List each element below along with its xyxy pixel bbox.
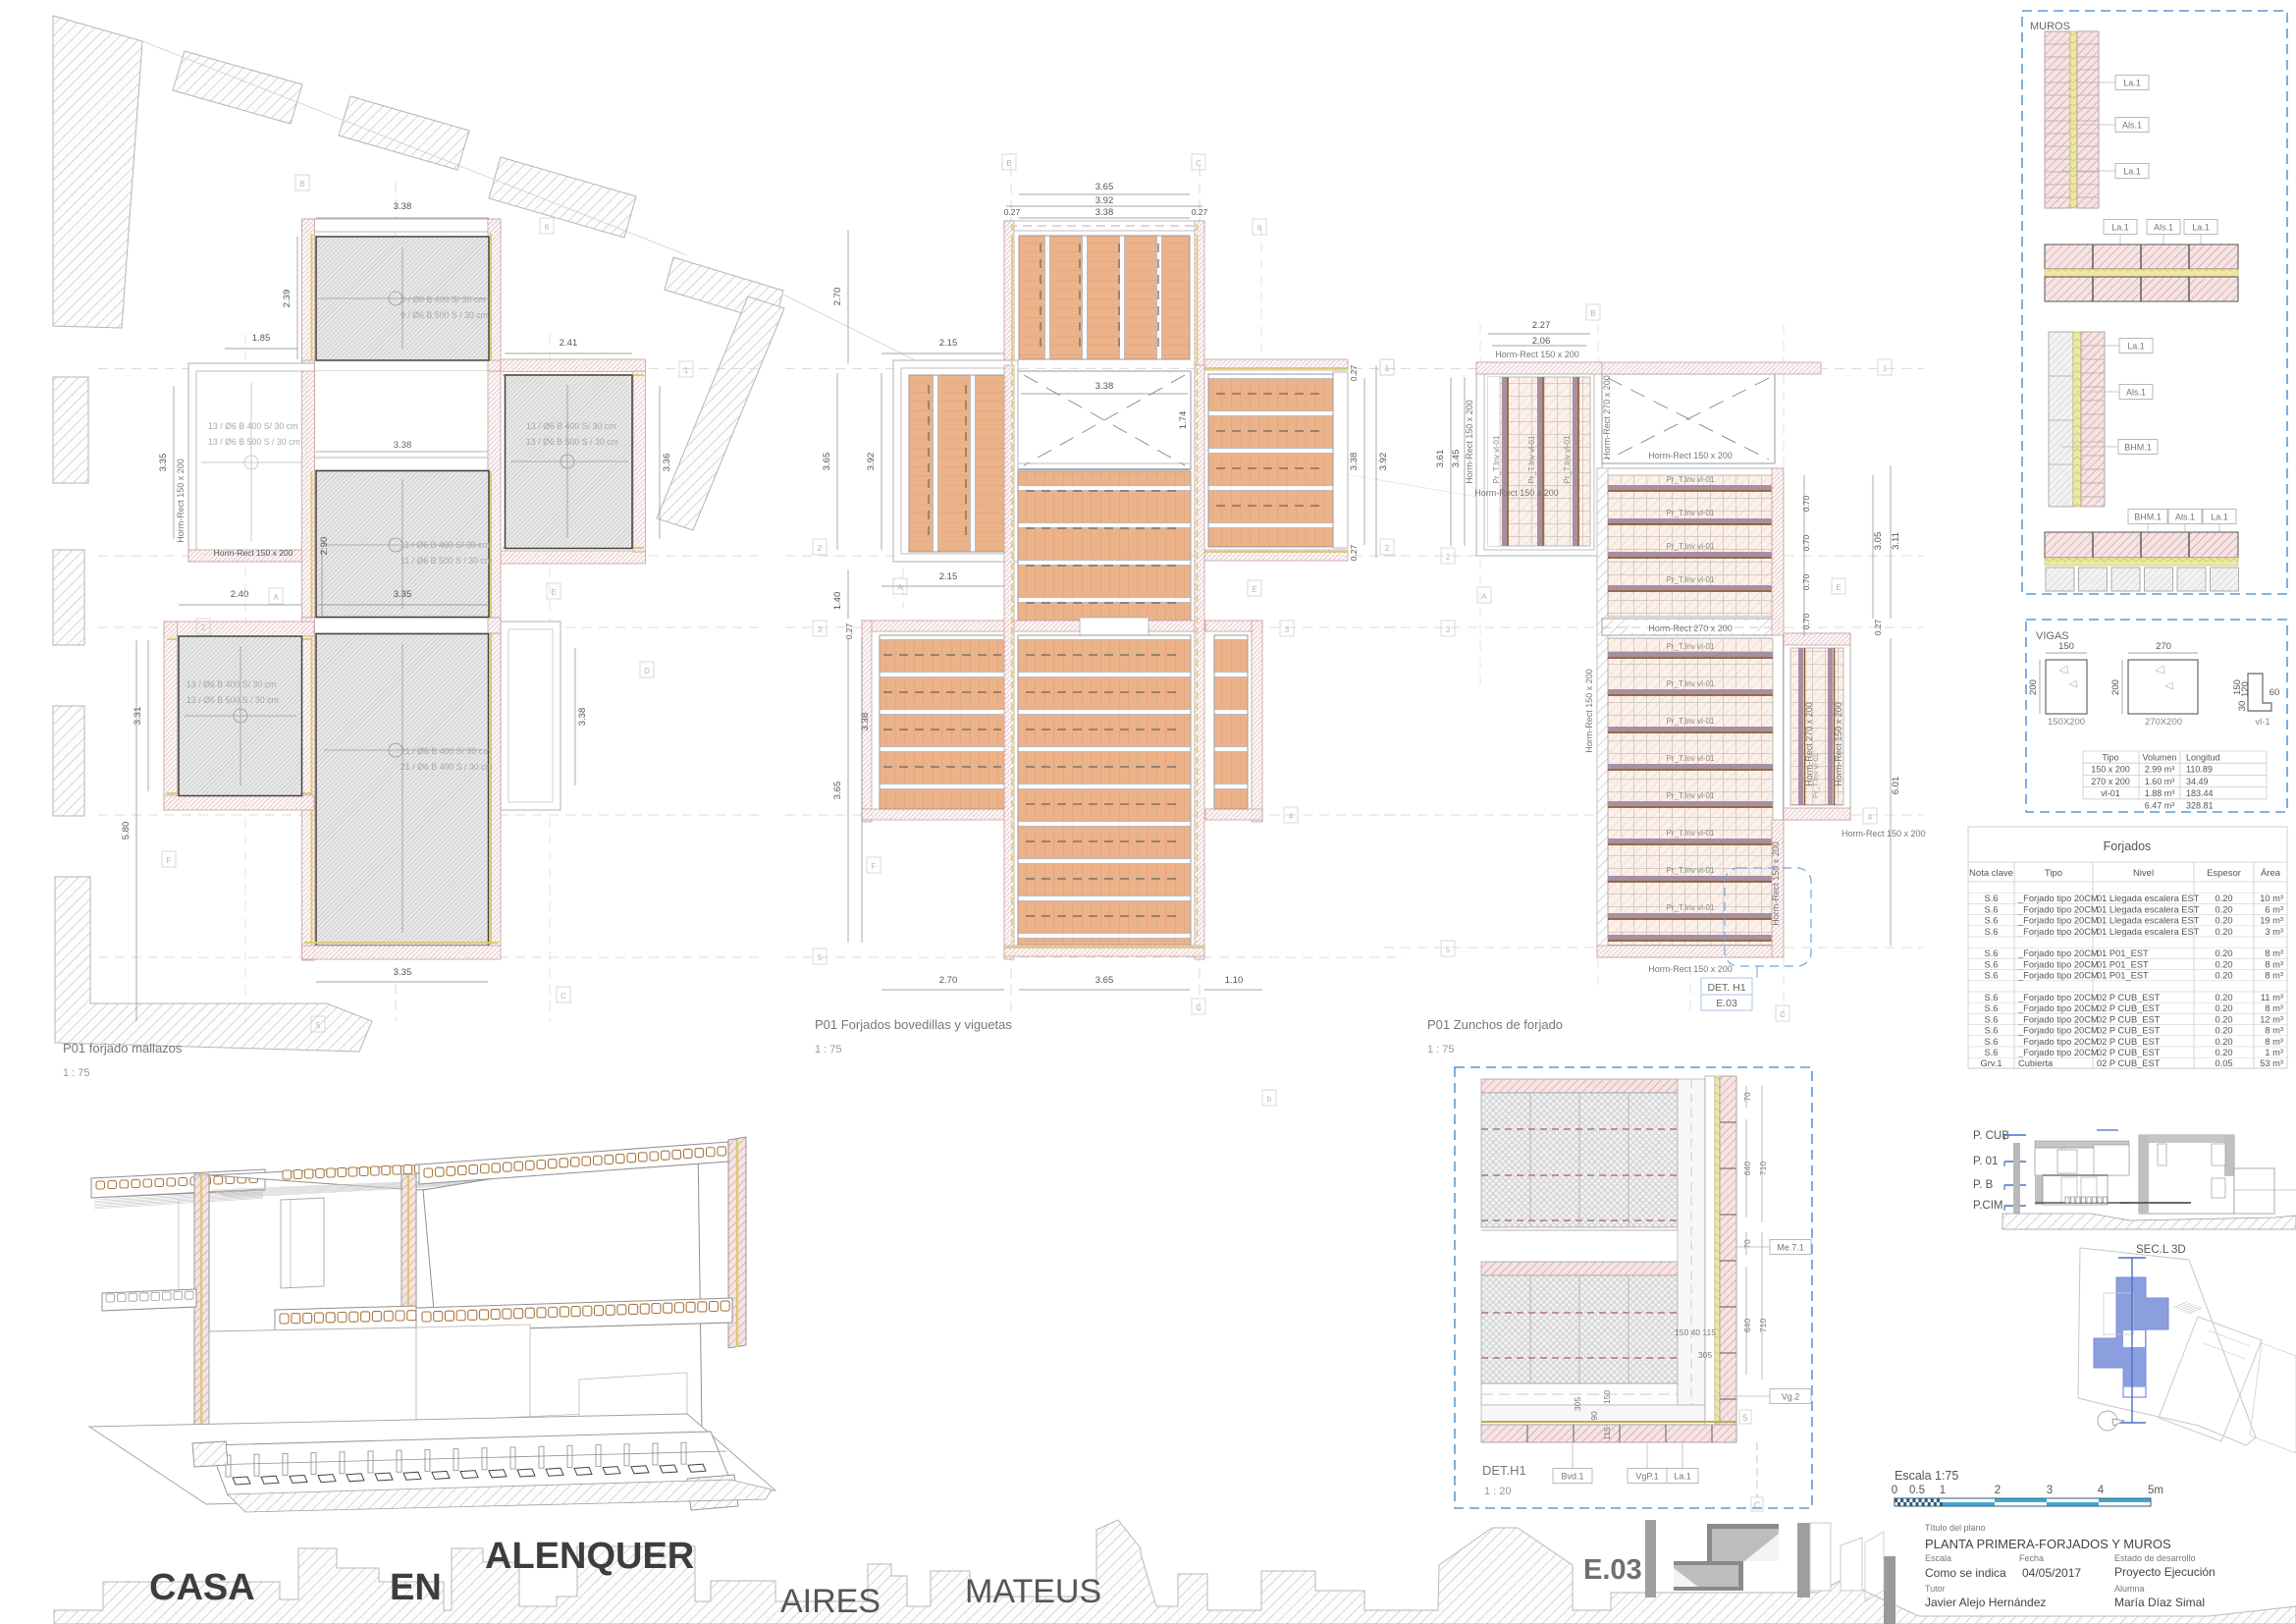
svg-text:02 P CUB_EST: 02 P CUB_EST (2097, 1037, 2161, 1047)
svg-text:3.35: 3.35 (394, 589, 412, 600)
svg-text:2.15: 2.15 (939, 338, 958, 349)
svg-text:Escala 1:75: Escala 1:75 (1895, 1469, 1958, 1483)
svg-text:01 P01_EST: 01 P01_EST (2097, 948, 2149, 958)
svg-text:3.61: 3.61 (1435, 450, 1446, 468)
svg-text:3.38: 3.38 (1095, 381, 1114, 392)
svg-text:2: 2 (1385, 544, 1390, 553)
svg-text:2.99 m³: 2.99 m³ (2145, 765, 2175, 775)
svg-text:Pr_T.Inv vl-01: Pr_T.Inv vl-01 (1667, 717, 1715, 726)
svg-text:Tutor: Tutor (1925, 1584, 1946, 1594)
svg-text:11 / Ø6 B 500 S / 30 cm: 11 / Ø6 B 500 S / 30 cm (400, 556, 492, 566)
svg-text:0.27: 0.27 (1349, 544, 1359, 561)
svg-text:La.1: La.1 (2192, 223, 2210, 233)
svg-text:2.40: 2.40 (231, 589, 249, 600)
svg-text:Horm-Rect 270 x 200: Horm-Rect 270 x 200 (1602, 375, 1612, 460)
svg-text:2: 2 (1446, 553, 1451, 562)
svg-text:E.03: E.03 (1716, 998, 1737, 1009)
svg-text:_Forjado tipo 20CM: _Forjado tipo 20CM (2017, 1003, 2099, 1013)
svg-text:1: 1 (1883, 364, 1888, 373)
svg-text:Pr_T.Inv vl-01: Pr_T.Inv vl-01 (1667, 903, 1715, 912)
svg-text:0.70: 0.70 (1801, 573, 1811, 590)
svg-text:Horm-Rect 270 x 200: Horm-Rect 270 x 200 (1648, 623, 1733, 633)
svg-text:DET.H1: DET.H1 (1482, 1463, 1526, 1478)
svg-text:C: C (1754, 1500, 1761, 1510)
svg-text:1 m³: 1 m³ (2265, 1048, 2283, 1057)
svg-text:P. 01: P. 01 (1973, 1156, 1998, 1167)
svg-text:_Forjado tipo 20CM: _Forjado tipo 20CM (2017, 959, 2099, 969)
svg-text:8 m³: 8 m³ (2265, 1003, 2283, 1013)
svg-text:Pr_T.Inv vl-01: Pr_T.Inv vl-01 (1667, 866, 1715, 875)
svg-text:3: 3 (2047, 1485, 2053, 1496)
svg-text:3.65: 3.65 (832, 782, 843, 800)
svg-text:0.27: 0.27 (844, 623, 854, 639)
svg-text:01 P01_EST: 01 P01_EST (2097, 971, 2149, 981)
svg-text:3.38: 3.38 (1349, 453, 1360, 471)
svg-text:Pr_T.Inv vl-01: Pr_T.Inv vl-01 (1667, 829, 1715, 838)
svg-text:0.70: 0.70 (1801, 613, 1811, 629)
svg-text:A: A (273, 593, 279, 602)
svg-text:9 / Ø6 B 400 S/ 30 cm: 9 / Ø6 B 400 S/ 30 cm (400, 295, 486, 304)
svg-text:90: 90 (1589, 1411, 1599, 1421)
svg-text:Pr_T.Inv vl-01: Pr_T.Inv vl-01 (1667, 679, 1715, 688)
svg-text:S.6: S.6 (1985, 971, 1999, 981)
svg-text:SEC.L 3D: SEC.L 3D (2136, 1244, 2186, 1256)
svg-text:0.5: 0.5 (1909, 1485, 1925, 1496)
svg-text:5m: 5m (2148, 1485, 2163, 1496)
svg-text:8 m³: 8 m³ (2265, 1037, 2283, 1047)
svg-text:9 / Ø6 B 500 S / 30 cm: 9 / Ø6 B 500 S / 30 cm (400, 310, 488, 320)
svg-text:0.20: 0.20 (2215, 1014, 2232, 1024)
svg-text:11 / Ø6 B 400 S/ 30 cm: 11 / Ø6 B 400 S/ 30 cm (400, 540, 490, 550)
svg-text:2.70: 2.70 (939, 975, 958, 986)
svg-text:270: 270 (2156, 641, 2171, 652)
svg-text:2: 2 (1995, 1485, 2001, 1496)
svg-text:Nota clave: Nota clave (1969, 868, 2013, 879)
svg-text:_Forjado tipo 20CM: _Forjado tipo 20CM (2017, 1037, 2099, 1047)
svg-text:2: 2 (818, 544, 823, 553)
svg-text:La.1: La.1 (2127, 342, 2145, 352)
svg-text:Área: Área (2261, 868, 2281, 879)
svg-text:Volumen: Volumen (2142, 753, 2176, 763)
svg-text:Horm-Rect 150 x 200: Horm-Rect 150 x 200 (1834, 702, 1843, 786)
svg-text:_Forjado tipo 20CM: _Forjado tipo 20CM (2017, 1048, 2099, 1057)
svg-text:C: C (561, 992, 566, 1001)
svg-text:vl-1: vl-1 (2255, 717, 2269, 728)
svg-text:01 Llegada escalera EST: 01 Llegada escalera EST (2097, 916, 2200, 926)
svg-text:Escala: Escala (1925, 1553, 1951, 1563)
svg-text:La.1: La.1 (1674, 1472, 1691, 1482)
svg-text:710: 710 (1758, 1319, 1768, 1332)
svg-text:710: 710 (1758, 1162, 1768, 1175)
svg-text:110.89: 110.89 (2186, 765, 2213, 775)
svg-text:BHM.1: BHM.1 (2124, 443, 2152, 453)
svg-text:150X200: 150X200 (2048, 717, 2085, 728)
svg-text:11 m³: 11 m³ (2261, 993, 2283, 1002)
svg-text:6.01: 6.01 (1891, 777, 1901, 795)
svg-text:150 x 200: 150 x 200 (2091, 765, 2130, 775)
svg-text:21 / Ø6 B 400 S/ 30 cm: 21 / Ø6 B 400 S/ 30 cm (400, 746, 490, 756)
svg-text:3.36: 3.36 (662, 454, 672, 472)
svg-text:S.6: S.6 (1985, 916, 1999, 926)
svg-text:Pr_T.Inv vl-01: Pr_T.Inv vl-01 (1492, 435, 1501, 483)
svg-text:3.38: 3.38 (577, 708, 588, 727)
svg-text:Me.7.1: Me.7.1 (1777, 1243, 1804, 1253)
svg-text:02 P CUB_EST: 02 P CUB_EST (2097, 993, 2161, 1002)
svg-text:La.1: La.1 (2211, 513, 2228, 522)
svg-text:1.40: 1.40 (832, 592, 843, 611)
svg-text:2.15: 2.15 (939, 571, 958, 582)
svg-text:Als.1: Als.1 (2126, 388, 2146, 398)
svg-text:Pr_T.Inv vl-01: Pr_T.Inv vl-01 (1667, 509, 1715, 517)
svg-text:S.6: S.6 (1985, 1037, 1999, 1047)
svg-text:_Forjado tipo 20CM: _Forjado tipo 20CM (2017, 993, 2099, 1002)
svg-text:Horm-Rect 150 x 200: Horm-Rect 150 x 200 (1495, 350, 1579, 359)
svg-text:328.81: 328.81 (2186, 800, 2214, 810)
svg-text:Cubierta: Cubierta (2018, 1058, 2054, 1068)
svg-text:2.39: 2.39 (282, 290, 293, 308)
svg-text:0.20: 0.20 (2215, 893, 2232, 903)
svg-text:60: 60 (2269, 687, 2280, 698)
svg-text:BHM.1: BHM.1 (2134, 513, 2162, 522)
svg-text:1 : 75: 1 : 75 (63, 1067, 90, 1079)
svg-text:200: 200 (2028, 679, 2039, 695)
svg-text:E: E (1252, 585, 1256, 594)
svg-text:F: F (167, 856, 172, 865)
svg-text:3.45: 3.45 (1451, 450, 1462, 468)
svg-text:1.74: 1.74 (1178, 411, 1189, 430)
svg-text:PLANTA PRIMERA-FORJADOS Y MURO: PLANTA PRIMERA-FORJADOS Y MUROS (1925, 1537, 2171, 1551)
svg-text:P01 Forjados bovedillas y vigu: P01 Forjados bovedillas y viguetas (815, 1017, 1012, 1032)
svg-text:Proyecto Ejecución: Proyecto Ejecución (2114, 1565, 2216, 1579)
svg-text:B: B (1590, 309, 1595, 318)
svg-text:13 / Ø6 B 500 S / 30 cm: 13 / Ø6 B 500 S / 30 cm (187, 695, 279, 705)
svg-text:P01 forjado mallazos: P01 forjado mallazos (63, 1041, 183, 1056)
svg-text:0: 0 (1892, 1485, 1897, 1496)
svg-text:0.05: 0.05 (2215, 1058, 2232, 1068)
svg-text:270X200: 270X200 (2145, 717, 2182, 728)
svg-text:_Forjado tipo 20CM: _Forjado tipo 20CM (2017, 1026, 2099, 1036)
svg-text:640: 640 (1742, 1162, 1752, 1175)
svg-text:3.05: 3.05 (1873, 532, 1884, 551)
svg-text:04/05/2017: 04/05/2017 (2022, 1566, 2081, 1580)
svg-text:Pr_T.Inv vl-01: Pr_T.Inv vl-01 (1667, 754, 1715, 763)
svg-text:Longitud: Longitud (2186, 753, 2220, 763)
svg-text:P. B: P. B (1973, 1179, 1994, 1191)
svg-text:3.38: 3.38 (394, 201, 412, 212)
svg-text:Pr_T.Inv vl-01: Pr_T.Inv vl-01 (1563, 435, 1572, 483)
svg-text:02 P CUB_EST: 02 P CUB_EST (2097, 1048, 2161, 1057)
svg-text:S.6: S.6 (1985, 948, 1999, 958)
svg-text:8 m³: 8 m³ (2265, 971, 2283, 981)
svg-text:María Díaz Simal: María Díaz Simal (2114, 1596, 2205, 1609)
svg-text:_Forjado tipo 20CM: _Forjado tipo 20CM (2017, 916, 2099, 926)
svg-text:La.1: La.1 (2111, 223, 2129, 233)
svg-text:1: 1 (684, 366, 689, 375)
svg-text:640: 640 (1742, 1319, 1752, 1332)
svg-text:5.80: 5.80 (121, 822, 132, 840)
svg-text:B: B (299, 180, 304, 189)
svg-text:Horm-Rect 150 x 200: Horm-Rect 150 x 200 (1465, 400, 1474, 484)
svg-text:Horm-Rect 150 x 200: Horm-Rect 150 x 200 (1474, 488, 1559, 498)
svg-text:S.6: S.6 (1985, 1003, 1999, 1013)
svg-text:_Forjado tipo 20CM: _Forjado tipo 20CM (2017, 1014, 2099, 1024)
svg-text:1: 1 (1940, 1485, 1946, 1496)
svg-text:21 / Ø6 B 400 S / 30 cm: 21 / Ø6 B 400 S / 30 cm (400, 762, 493, 772)
svg-text:E: E (1836, 583, 1841, 592)
svg-text:3.65: 3.65 (822, 453, 832, 471)
svg-text:0.20: 0.20 (2215, 1048, 2232, 1057)
svg-text:305: 305 (1698, 1350, 1712, 1360)
svg-text:_Forjado tipo 20CM: _Forjado tipo 20CM (2017, 893, 2099, 903)
svg-text:200: 200 (2110, 679, 2121, 695)
svg-text:3.92: 3.92 (1378, 453, 1389, 471)
svg-text:Pr_T.Inv vl-01: Pr_T.Inv vl-01 (1667, 475, 1715, 484)
svg-text:Javier Alejo Hernández: Javier Alejo Hernández (1925, 1596, 2046, 1609)
svg-text:S.6: S.6 (1985, 893, 1999, 903)
svg-text:305: 305 (1573, 1397, 1582, 1411)
svg-text:115: 115 (1602, 1427, 1612, 1440)
svg-text:0.27: 0.27 (1873, 619, 1883, 635)
svg-text:6 m³: 6 m³ (2265, 904, 2283, 914)
svg-text:Horm-Rect 150 x 200: Horm-Rect 150 x 200 (214, 548, 294, 558)
svg-text:vl-01: vl-01 (2101, 788, 2120, 798)
svg-text:_Forjado tipo 20CM: _Forjado tipo 20CM (2017, 927, 2099, 937)
svg-text:3.65: 3.65 (1095, 182, 1114, 192)
svg-text:D: D (644, 667, 650, 676)
svg-text:01 Llegada escalera EST: 01 Llegada escalera EST (2097, 893, 2200, 903)
svg-text:13 / Ø6 B 400 S/ 30 cm: 13 / Ø6 B 400 S/ 30 cm (187, 679, 276, 689)
svg-text:150: 150 (1602, 1390, 1612, 1404)
svg-text:S.6: S.6 (1985, 1026, 1999, 1036)
svg-text:2.27: 2.27 (1532, 320, 1551, 331)
svg-text:C: C (1780, 1010, 1786, 1019)
svg-text:Pr_T.Inv vl-01: Pr_T.Inv vl-01 (1667, 791, 1715, 800)
svg-text:P.CIM: P.CIM (1973, 1200, 2002, 1212)
svg-text:02 P CUB_EST: 02 P CUB_EST (2097, 1003, 2161, 1013)
svg-text:150 40 115: 150 40 115 (1675, 1327, 1716, 1337)
svg-text:_Forjado tipo 20CM: _Forjado tipo 20CM (2017, 971, 2099, 981)
svg-text:Tipo: Tipo (2102, 753, 2118, 763)
svg-text:13 / Ø6 B 500 S / 30 cm: 13 / Ø6 B 500 S / 30 cm (208, 437, 300, 447)
svg-text:6.47 m³: 6.47 m³ (2145, 800, 2175, 810)
svg-text:ALENQUER: ALENQUER (485, 1536, 694, 1577)
svg-text:0.20: 0.20 (2215, 916, 2232, 926)
svg-text:E.03: E.03 (1583, 1554, 1642, 1586)
svg-text:Horm-Rect 150 x 200: Horm-Rect 150 x 200 (1771, 841, 1781, 926)
svg-text:3.35: 3.35 (394, 967, 412, 978)
svg-text:MATEUS: MATEUS (965, 1573, 1101, 1610)
svg-text:3: 3 (818, 625, 823, 634)
svg-text:Como se indica: Como se indica (1925, 1566, 2006, 1580)
svg-text:Vg.2: Vg.2 (1782, 1392, 1800, 1402)
svg-text:Horm-Rect 150 x 200: Horm-Rect 150 x 200 (1584, 669, 1594, 753)
svg-text:53 m³: 53 m³ (2260, 1058, 2283, 1068)
svg-text:3.92: 3.92 (866, 453, 877, 471)
svg-text:B: B (1006, 159, 1011, 168)
svg-text:8 m³: 8 m³ (2265, 948, 2283, 958)
svg-text:0.20: 0.20 (2215, 1037, 2232, 1047)
svg-text:Pr_T.Inv vl-01: Pr_T.Inv vl-01 (1667, 642, 1715, 651)
svg-text:70: 70 (1742, 1092, 1752, 1102)
svg-text:270 x 200: 270 x 200 (2091, 777, 2130, 786)
svg-text:0.20: 0.20 (2215, 971, 2232, 981)
svg-text:19 m³: 19 m³ (2260, 916, 2283, 926)
svg-text:0.27: 0.27 (1004, 207, 1021, 217)
svg-text:Estado de desarrollo: Estado de desarrollo (2114, 1553, 2196, 1563)
svg-text:C: C (1196, 159, 1201, 168)
svg-text:Pr_T.Inv vl-01: Pr_T.Inv vl-01 (1667, 575, 1715, 584)
svg-text:120: 120 (2240, 681, 2251, 697)
svg-text:Fecha: Fecha (2019, 1553, 2044, 1563)
svg-text:A: A (897, 583, 903, 592)
svg-text:Pr_T.Inv vl-01: Pr_T.Inv vl-01 (1667, 542, 1715, 551)
svg-text:01 Llegada escalera EST: 01 Llegada escalera EST (2097, 927, 2200, 937)
svg-text:8 m³: 8 m³ (2265, 959, 2283, 969)
svg-text:0.70: 0.70 (1801, 495, 1811, 512)
svg-text:b: b (1267, 1095, 1272, 1104)
svg-text:8 m³: 8 m³ (2265, 1026, 2283, 1036)
svg-text:150: 150 (2058, 641, 2074, 652)
svg-text:3.38: 3.38 (860, 713, 871, 731)
svg-text:DET. H1: DET. H1 (1707, 982, 1745, 994)
svg-text:S.6: S.6 (1985, 993, 1999, 1002)
svg-text:Als.1: Als.1 (2175, 513, 2195, 522)
svg-text:Bvd.1: Bvd.1 (1561, 1472, 1583, 1482)
svg-text:1.10: 1.10 (1225, 975, 1244, 986)
svg-text:3: 3 (1446, 625, 1451, 634)
svg-text:0.20: 0.20 (2215, 959, 2232, 969)
svg-text:2.90: 2.90 (319, 537, 330, 556)
svg-text:2.70: 2.70 (832, 288, 843, 306)
svg-text:01 Llegada escalera EST: 01 Llegada escalera EST (2097, 904, 2200, 914)
svg-text:Horm-Rect 270 x 200: Horm-Rect 270 x 200 (1804, 702, 1814, 786)
svg-text:4: 4 (2098, 1485, 2105, 1496)
svg-text:F: F (872, 862, 877, 871)
svg-text:10 m³: 10 m³ (2260, 893, 2283, 903)
svg-text:1 : 75: 1 : 75 (1427, 1044, 1455, 1056)
svg-text:34.49: 34.49 (2186, 777, 2209, 786)
svg-text:S.6: S.6 (1985, 1048, 1999, 1057)
svg-text:12 m³: 12 m³ (2260, 1014, 2283, 1024)
svg-text:4: 4 (1868, 813, 1873, 822)
svg-text:3.11: 3.11 (1891, 532, 1901, 550)
svg-text:Als.1: Als.1 (2154, 223, 2173, 233)
svg-text:CASA: CASA (149, 1567, 255, 1608)
svg-text:P01 Zunchos de forjado: P01 Zunchos de forjado (1427, 1017, 1563, 1032)
svg-text:E: E (551, 588, 556, 597)
svg-text:1 : 20: 1 : 20 (1484, 1486, 1512, 1497)
svg-text:3 m³: 3 m³ (2265, 927, 2283, 937)
svg-text:Forjados: Forjados (2104, 839, 2152, 853)
svg-text:Nivel: Nivel (2133, 868, 2154, 879)
svg-text:La.1: La.1 (2123, 167, 2141, 177)
svg-text:183.44: 183.44 (2186, 788, 2214, 798)
svg-text:A: A (1481, 592, 1487, 601)
svg-text:02 P CUB_EST: 02 P CUB_EST (2097, 1026, 2161, 1036)
svg-text:C: C (1196, 1003, 1201, 1012)
svg-text:0.20: 0.20 (2215, 948, 2232, 958)
svg-text:3.35: 3.35 (158, 454, 169, 472)
svg-text:S.6: S.6 (1985, 959, 1999, 969)
svg-text:6: 6 (1257, 224, 1262, 233)
svg-text:02 P CUB_EST: 02 P CUB_EST (2097, 1058, 2161, 1068)
svg-text:Horm-Rect 150 x 200: Horm-Rect 150 x 200 (176, 459, 186, 543)
svg-text:Als.1: Als.1 (2122, 121, 2142, 131)
svg-text:5: 5 (316, 1021, 321, 1030)
svg-text:3: 3 (1285, 625, 1290, 634)
svg-text:Pr_T.Inv vl-01: Pr_T.Inv vl-01 (1527, 435, 1536, 483)
svg-text:3.38: 3.38 (394, 440, 412, 451)
svg-text:0.27: 0.27 (1349, 364, 1359, 381)
svg-text:13 / Ø6 B 400 S/ 30 cm: 13 / Ø6 B 400 S/ 30 cm (526, 421, 615, 431)
svg-text:Título del plano: Título del plano (1925, 1523, 1986, 1533)
svg-text:0.20: 0.20 (2215, 1026, 2232, 1036)
svg-text:S.6: S.6 (1985, 927, 1999, 937)
svg-text:_Forjado tipo 20CM: _Forjado tipo 20CM (2017, 904, 2099, 914)
svg-text:1.60 m³: 1.60 m³ (2145, 777, 2175, 786)
svg-text:1 : 75: 1 : 75 (815, 1044, 842, 1056)
svg-text:3.92: 3.92 (1095, 195, 1114, 206)
svg-text:Alumna: Alumna (2114, 1584, 2145, 1594)
svg-text:AIRES: AIRES (780, 1583, 881, 1620)
svg-text:VgP.1: VgP.1 (1635, 1472, 1658, 1482)
svg-text:1.85: 1.85 (252, 333, 271, 344)
svg-text:5: 5 (1446, 946, 1451, 954)
svg-text:Horm-Rect 150 x 200: Horm-Rect 150 x 200 (1648, 964, 1733, 974)
svg-text:0.20: 0.20 (2215, 1003, 2232, 1013)
svg-text:Grv.1: Grv.1 (1980, 1058, 2002, 1068)
svg-text:Horm-Rect 150 x 200: Horm-Rect 150 x 200 (1648, 451, 1733, 460)
svg-text:0.70: 0.70 (1801, 534, 1811, 551)
svg-text:02 P CUB_EST: 02 P CUB_EST (2097, 1014, 2161, 1024)
svg-text:2.41: 2.41 (560, 338, 578, 349)
svg-text:S.6: S.6 (1985, 1014, 1999, 1024)
svg-text:La.1: La.1 (2123, 79, 2141, 88)
svg-text:5: 5 (818, 953, 823, 962)
svg-text:3.38: 3.38 (1095, 207, 1114, 218)
svg-text:4: 4 (1289, 812, 1294, 821)
svg-text:3.31: 3.31 (133, 707, 143, 726)
svg-text:13 / Ø6 B 500 S / 30 cm: 13 / Ø6 B 500 S / 30 cm (526, 437, 618, 447)
svg-text:Espesor: Espesor (2207, 868, 2241, 879)
svg-text:01 P01_EST: 01 P01_EST (2097, 959, 2149, 969)
svg-text:_Forjado tipo 20CM: _Forjado tipo 20CM (2017, 948, 2099, 958)
svg-text:2: 2 (201, 623, 206, 632)
svg-text:S.6: S.6 (1985, 904, 1999, 914)
svg-text:1: 1 (1385, 364, 1390, 373)
svg-text:0.20: 0.20 (2215, 904, 2232, 914)
svg-text:0.20: 0.20 (2215, 927, 2232, 937)
svg-text:MUROS: MUROS (2030, 21, 2070, 32)
svg-text:30: 30 (2237, 701, 2248, 712)
svg-text:2.06: 2.06 (1532, 336, 1551, 347)
svg-text:EN: EN (390, 1567, 442, 1608)
svg-text:3.65: 3.65 (1095, 975, 1114, 986)
svg-text:0.27: 0.27 (1192, 207, 1208, 217)
svg-text:1.88 m³: 1.88 m³ (2145, 788, 2175, 798)
svg-text:Horm-Rect 150 x 200: Horm-Rect 150 x 200 (1842, 829, 1926, 839)
svg-text:13 / Ø6 B 400 S/ 30 cm: 13 / Ø6 B 400 S/ 30 cm (208, 421, 297, 431)
svg-text:5: 5 (1742, 1413, 1747, 1423)
svg-text:6: 6 (545, 223, 550, 232)
svg-text:0.20: 0.20 (2215, 993, 2232, 1002)
svg-text:Tipo: Tipo (2045, 868, 2062, 879)
